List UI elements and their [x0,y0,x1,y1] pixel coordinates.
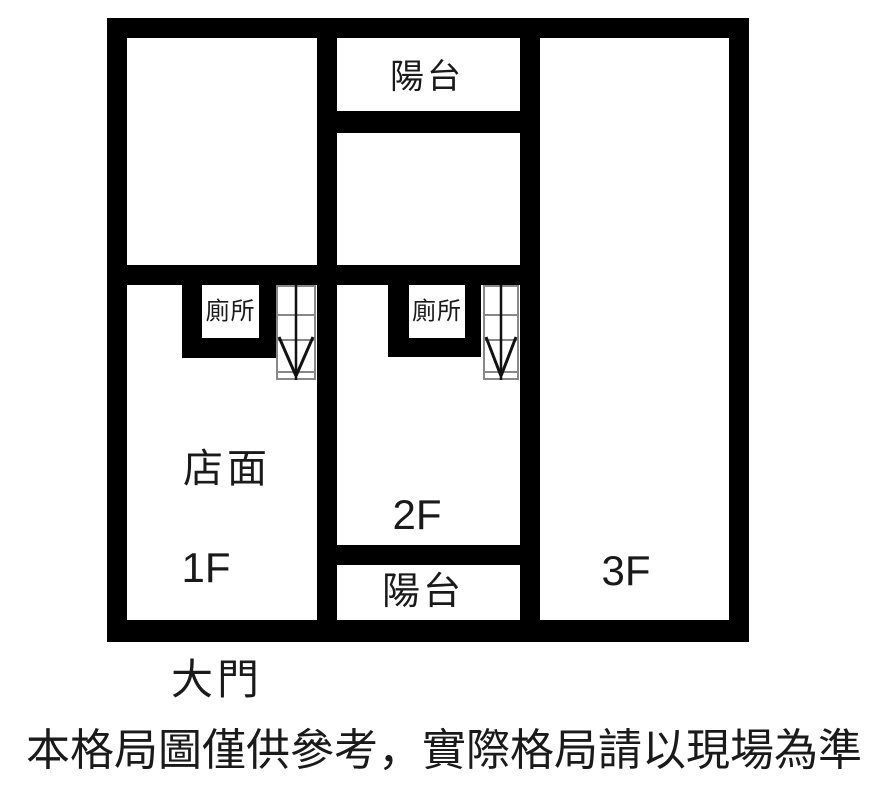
staircase-left-icon [276,285,316,380]
floor-3-label: 3F [601,550,650,592]
wall-outer-bottom [107,620,749,642]
balcony-top-label: 陽台 [390,60,464,94]
staircase-middle-icon [483,285,519,380]
main-door-label: 大門 [171,659,263,701]
toilet-room-left: 廁所 [202,285,259,338]
wall-outer-left [107,18,127,642]
balcony-bottom-label: 陽台 [382,573,464,611]
floor-2-label: 2F [392,494,441,536]
floor-plan: 廁所 廁所 陽台 店面 1F 2F 3F [0,0,889,790]
toilet-middle-label: 廁所 [412,300,462,324]
wall-divider-middle-right [520,18,540,642]
wall-above-bottom-balcony [337,545,520,565]
toilet-enclosure-middle: 廁所 [388,265,481,357]
floor-1-label: 1F [181,547,230,589]
toilet-left-label: 廁所 [206,300,256,324]
wall-divider-left-middle [317,18,337,642]
toilet-enclosure-left: 廁所 [182,265,276,358]
wall-outer-right [729,18,749,642]
storefront-label: 店面 [183,449,271,489]
toilet-room-middle: 廁所 [409,285,465,338]
disclaimer-text: 本格局圖僅供參考，實際格局請以現場為準 [26,714,862,778]
wall-outer-top [107,18,749,38]
wall-below-top-balcony [337,111,520,133]
